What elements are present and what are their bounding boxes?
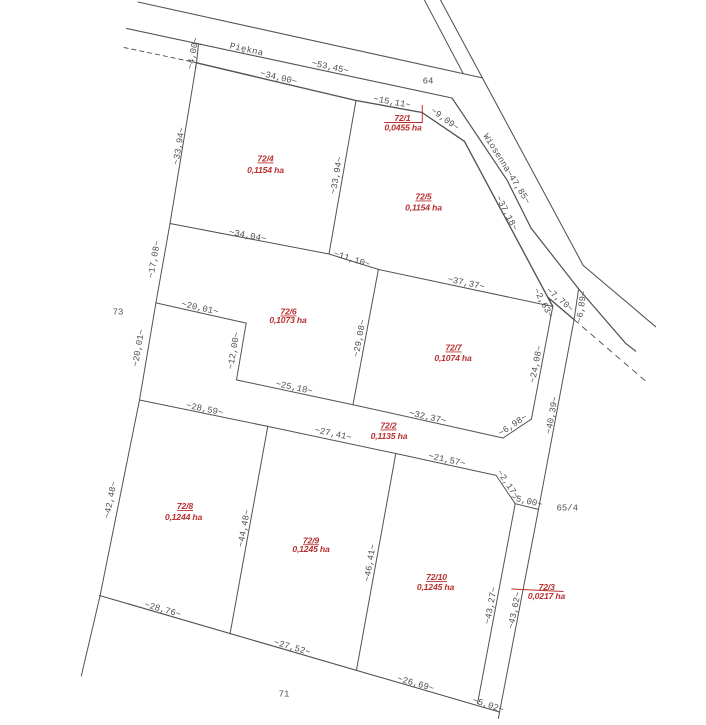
svg-text:0,1154 ha: 0,1154 ha [247,165,284,175]
svg-text:0,0217 ha: 0,0217 ha [528,591,566,601]
svg-text:0,0455 ha: 0,0455 ha [384,123,422,133]
svg-text:0,1244 ha: 0,1244 ha [165,512,203,522]
svg-text:71: 71 [279,690,290,700]
svg-text:72/10: 72/10 [426,572,447,582]
svg-text:73: 73 [113,308,124,318]
svg-text:0,1154 ha: 0,1154 ha [405,202,442,212]
svg-text:0,1245 ha: 0,1245 ha [292,544,330,554]
svg-text:0,1135 ha: 0,1135 ha [371,431,408,441]
svg-text:0,1073 ha: 0,1073 ha [269,315,307,325]
svg-text:64: 64 [423,77,434,87]
svg-text:72/1: 72/1 [394,113,410,123]
svg-text:72/4: 72/4 [257,154,273,164]
svg-text:72/7: 72/7 [445,343,462,353]
svg-text:0,1074 ha: 0,1074 ha [434,353,472,363]
svg-text:0,1245 ha: 0,1245 ha [417,582,455,592]
svg-text:72/8: 72/8 [177,501,193,511]
svg-text:72/5: 72/5 [415,192,431,202]
svg-text:72/2: 72/2 [380,421,396,431]
svg-text:65/4: 65/4 [556,504,578,514]
